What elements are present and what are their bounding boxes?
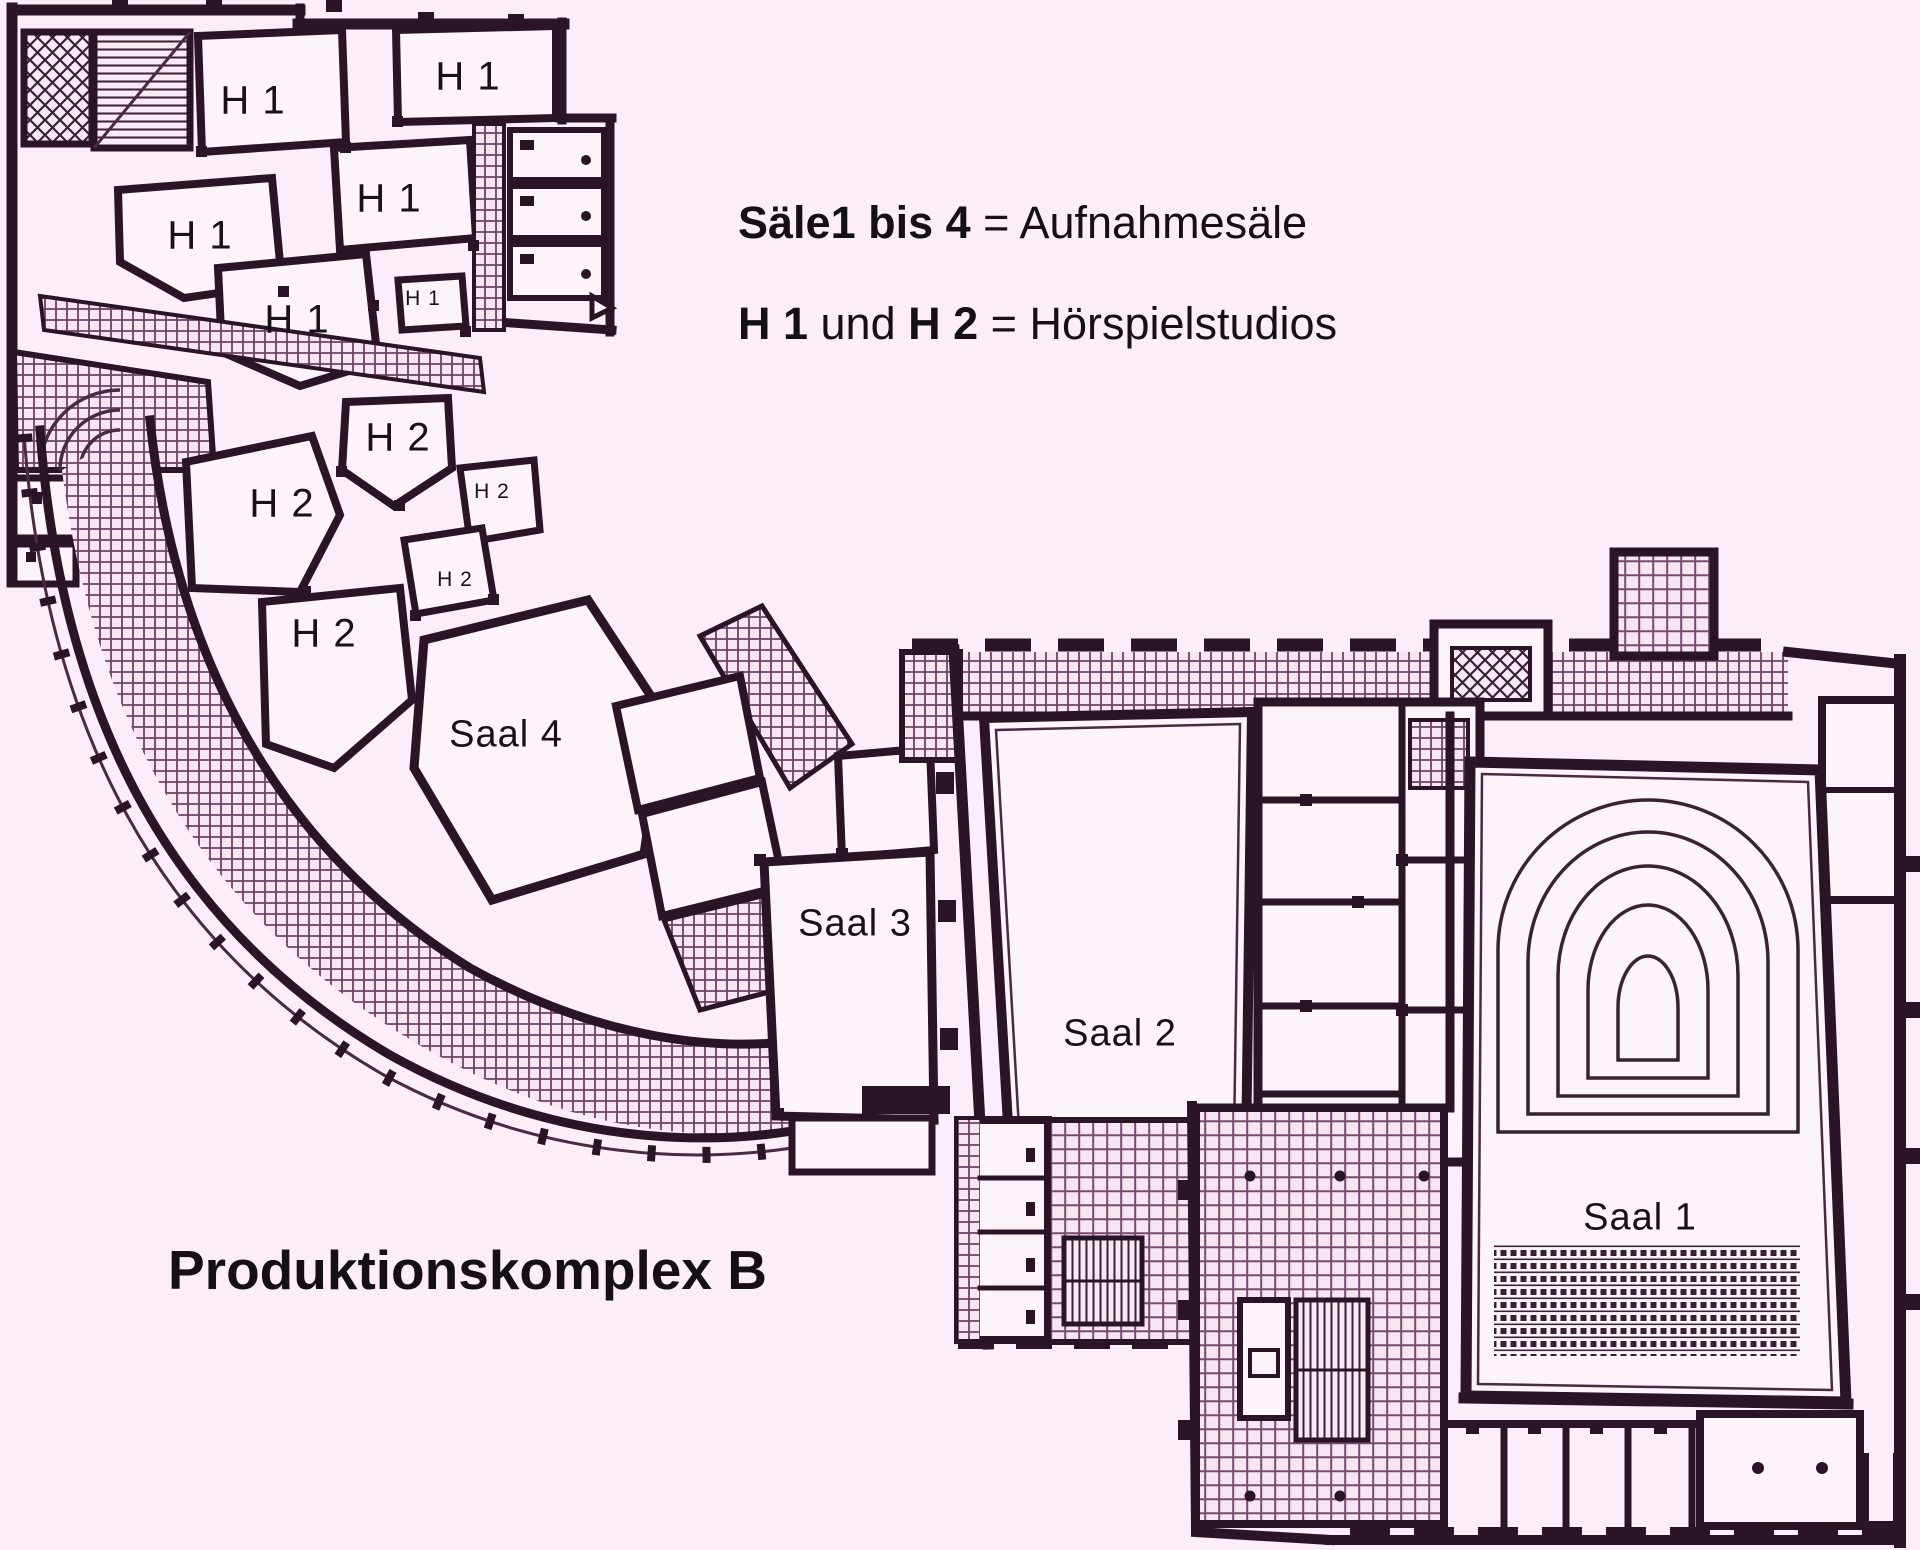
legend-saele-rest: = Aufnahmesäle [971, 197, 1308, 248]
service-room [510, 186, 604, 238]
room-h1-2 [396, 26, 556, 122]
small-room [792, 1118, 932, 1172]
corridor-hatch-vertical [474, 124, 504, 330]
bottom-right-room [1700, 1414, 1860, 1526]
legend-line-saele: Säle1 bis 4 = Aufnahmesäle [738, 200, 1337, 245]
room-saal3 [764, 852, 934, 1120]
floorplan: H 1H 1H 1H 1H 1H 1H 2H 2H 2H 2H 2Saal 4S… [0, 0, 1920, 1550]
elevator [1240, 1300, 1288, 1418]
room-h2-5 [262, 588, 412, 768]
legend-line-h: H 1 und H 2 = Hörspielstudios [738, 301, 1337, 346]
legend-h-mid: und [808, 298, 908, 349]
small-room [838, 748, 934, 858]
walkway-end-wall [862, 1086, 950, 1114]
room-h1-1 [198, 30, 346, 152]
small-room [1822, 700, 1898, 900]
room-saal2 [984, 712, 1252, 1158]
room-h2-1 [342, 398, 452, 506]
hatched-tower [1614, 552, 1714, 656]
room-h2-4 [404, 528, 494, 614]
saal1-seating-rows [1494, 1244, 1800, 1356]
legend-h2-bold: H 2 [908, 298, 978, 349]
legend-h1-bold: H 1 [738, 298, 808, 349]
plan-caption: Produktionskomplex B [168, 1238, 767, 1302]
room-h1-3 [334, 140, 476, 250]
legend-saele-bold: Säle1 bis 4 [738, 197, 971, 248]
room-h1-6 [398, 276, 466, 330]
service-room [510, 130, 604, 180]
legend-h-rest: = Hörspielstudios [978, 298, 1337, 349]
legend: Säle1 bis 4 = Aufnahmesäle H 1 und H 2 =… [738, 200, 1337, 402]
u-element [1866, 1456, 1896, 1524]
stair-hall-lattice [24, 32, 92, 144]
room-h2-2 [186, 436, 340, 592]
